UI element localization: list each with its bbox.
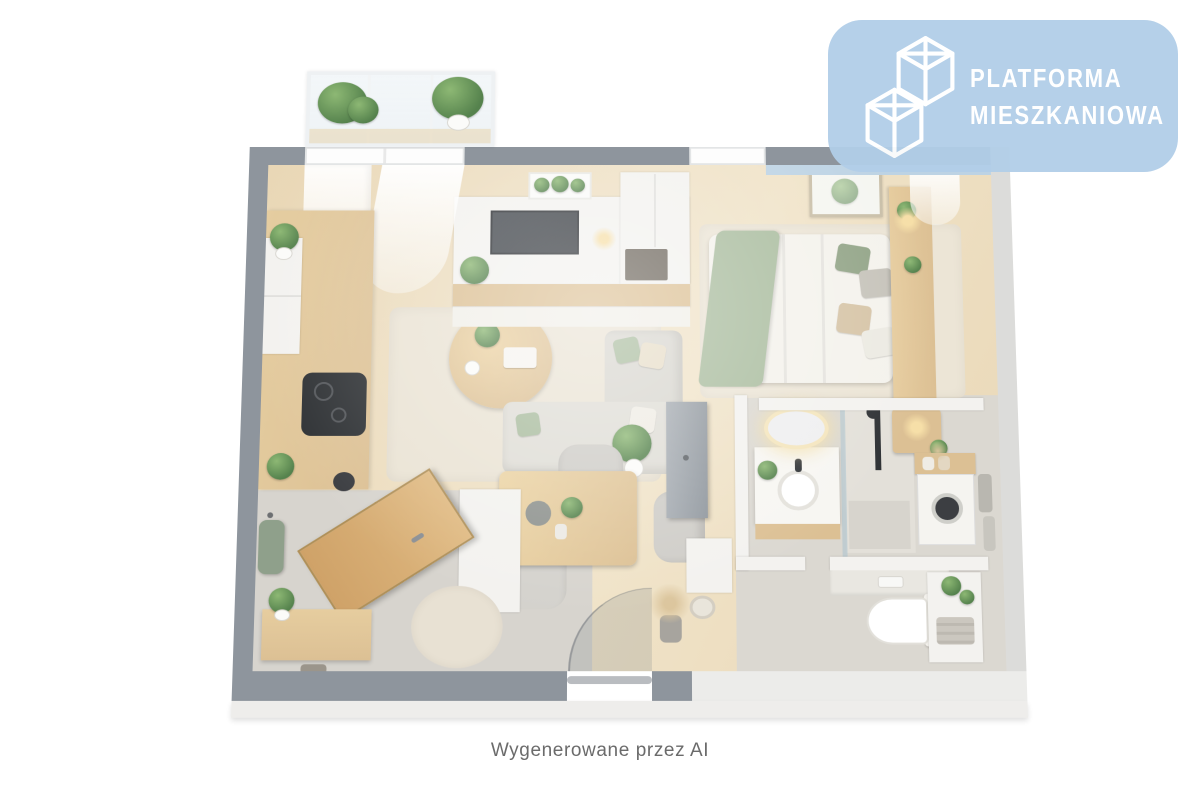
balcony-floor [309,129,491,143]
coat-on-hook [258,520,285,574]
sofa-pillow-cream [638,342,667,370]
logo-line-1: PLATFORMA [970,60,1165,97]
exterior-wall-bottom-right [692,671,1028,701]
coffee-table-small-plant-pot [464,360,480,375]
exterior-wall-bottom-left [232,671,568,701]
table-vase [555,524,567,539]
nightstand-lamp [902,413,932,441]
balcony-plant-right [432,77,484,120]
media-console-wood [453,284,690,306]
wardrobe-handle [683,455,689,461]
exterior-wall-top-seg2 [464,147,689,165]
led-mirror [764,407,829,449]
exterior-wall-top-seg1 [249,147,305,165]
table-plate-decor [525,501,551,526]
coffee-table-books [503,347,536,368]
induction-hob [301,373,367,436]
dried-flowers [926,442,950,461]
pampas-plumes [648,584,692,623]
entrance-threshold [567,676,652,684]
isometric-cubes-building-icon [860,36,960,158]
ai-generated-caption: Wygenerowane przez AI [0,740,1200,762]
vanity-plant [758,461,778,480]
living-window-mullion [383,149,386,163]
bedroom-window [689,147,766,165]
round-basket [690,596,716,619]
logo-wordmark: PLATFORMA MIESZKANIOWA [970,60,1165,134]
vanity-wood-drawer [755,524,840,539]
round-hall-rug [410,586,503,668]
platforma-mieszkaniowa-logo-badge: PLATFORMA MIESZKANIOWA [828,20,1178,172]
bottom-wall-face [231,701,1028,718]
bed-pillow-gray [858,268,894,299]
cabinet-seam [654,174,656,247]
exterior-wall-bottom-mid [652,671,692,701]
washing-machine-door [931,493,963,524]
herb-plant-3 [571,179,585,193]
sofa-pillow-green [515,412,541,438]
bathroom-left-wall [734,395,748,570]
table-plant [561,497,583,518]
shower-drain-shade [849,501,911,549]
round-sink [777,470,819,510]
pendant-light [591,227,616,251]
herb-plant-1 [534,178,549,193]
flush-plate [878,576,904,588]
logo-line-2: MIESZKANIOWA [970,97,1165,134]
towel-stack [936,617,975,644]
sink-faucet [795,459,802,472]
corridor-white-cabinet [686,538,732,592]
herb-plant-2 [551,176,568,192]
hanging-towel-1 [978,474,993,512]
wc-plant-1 [941,576,961,595]
bathroom-wc-divider-wall-2 [830,557,989,571]
kitchen-cabinet-seam [264,295,301,297]
wc-plant-2 [959,590,974,605]
toilet-bowl [866,598,929,645]
plant-by-tv [460,256,489,284]
headboard-plant-2 [904,256,922,273]
tv-screen [490,211,579,255]
apartment-floorplan [231,147,1028,718]
bathroom-wc-divider-wall [736,557,805,571]
wall-art-leaves [831,179,858,204]
balcony-plant-right-pot [447,114,470,130]
hanging-towel-2 [983,516,996,551]
media-console-drawers [452,306,690,326]
open-shelf-books [625,249,668,280]
bedroom-partition-wall [759,398,984,410]
